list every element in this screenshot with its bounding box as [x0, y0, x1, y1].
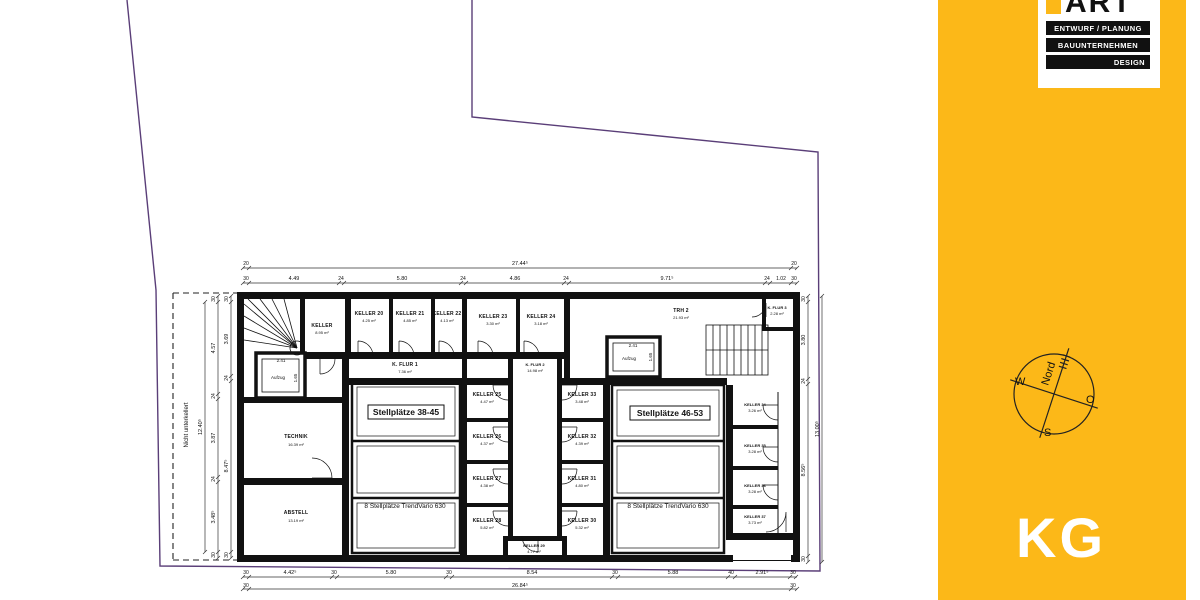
- room-k25-area: 4.47 m²: [480, 399, 494, 404]
- compass-north-label: Nord: [1039, 361, 1058, 387]
- room-k28-name: KELLER 28: [473, 518, 502, 524]
- dim-bot1-2: 30: [331, 570, 337, 576]
- room-k21-area: 4.85 m²: [403, 318, 417, 323]
- room-k22-name: KELLER 22: [433, 311, 462, 317]
- room-k37-name: KELLER 37: [744, 514, 766, 519]
- room-k29-area: 4.77 m²: [527, 549, 541, 554]
- dim-lm-6: 30: [211, 552, 217, 558]
- room-keller-area: 8.95 m²: [315, 330, 329, 335]
- room-k34-name: KELLER 34: [744, 402, 766, 407]
- dim-top1-0: 20: [243, 261, 249, 267]
- entry-notch: [733, 540, 791, 562]
- compass-south-label: S: [1044, 427, 1051, 439]
- floorplan-sheet: Nicht unterkellert: [0, 0, 1200, 600]
- logo-bar-design: DESIGN: [1046, 55, 1150, 69]
- dim-ri-3: 8.56⁵: [800, 464, 807, 477]
- room-k26-area: 4.37 m²: [480, 441, 494, 446]
- room-kflur2-name: K. FLUR 2: [525, 362, 545, 367]
- room-k27-area: 4.38 m²: [480, 483, 494, 488]
- room-k22-area: 4.13 m²: [440, 318, 454, 323]
- floor-label: KG: [1016, 505, 1106, 570]
- room-abstell-area: 13.19 m²: [288, 518, 304, 523]
- dim-bot2-1: 26.84⁵: [512, 582, 528, 589]
- dim-bot1-0: 30: [243, 570, 249, 576]
- room-k26-name: KELLER 26: [473, 434, 502, 440]
- room-kflur2-area: 14.98 m²: [527, 368, 543, 373]
- room-k35-name: KELLER 35: [744, 443, 766, 448]
- site-note: Nicht unterkellert: [184, 402, 190, 447]
- room-abstell-name: ABSTELL: [284, 510, 308, 516]
- elevator2-label: Aufzug: [622, 356, 637, 361]
- dim-li-3: 8.47⁵: [223, 460, 230, 473]
- room-keller-name: KELLER: [311, 323, 332, 329]
- dim-lm-1: 4.57: [211, 343, 217, 354]
- room-k35-area: 3.28 m²: [748, 449, 762, 454]
- company-logo: ART ENTWURF / PLANUNG BAUUNTERNEHMEN DES…: [1038, 0, 1160, 88]
- dim-top2-8: 24: [764, 276, 770, 282]
- dim-bot1-4: 30: [446, 570, 452, 576]
- room-k37-area: 3.73 m²: [748, 520, 762, 525]
- room-k25-name: KELLER 25: [473, 392, 502, 398]
- room-technik-area: 16.39 m²: [288, 442, 304, 447]
- room-kflur3-name: K. FLUR 3: [767, 305, 787, 310]
- elevator1-label: Aufzug: [271, 375, 286, 380]
- dim-top2-6: 24: [563, 276, 569, 282]
- dim-left-outer: 12.40⁵: [197, 419, 204, 435]
- room-k34-area: 3.26 m²: [748, 408, 762, 413]
- dim-bot1-9: 2.91⁵: [756, 569, 769, 576]
- room-kflur1-name: K. FLUR 1: [392, 362, 418, 368]
- dim-top2-2: 24: [338, 276, 344, 282]
- room-k30-area: 5.32 m²: [575, 525, 589, 530]
- dim-top1-1: 27.44⁵: [512, 260, 528, 267]
- room-k27-name: KELLER 27: [473, 476, 502, 482]
- dim-bot1-1: 4.42⁵: [284, 569, 297, 576]
- compass-east-label: O: [1086, 394, 1095, 406]
- room-k24-name: KELLER 24: [527, 314, 556, 320]
- dim-ri-2: 24: [801, 378, 807, 384]
- room-k36-area: 3.28 m²: [748, 489, 762, 494]
- dim-li-0: 30: [224, 296, 230, 302]
- room-k33-area: 3.48 m²: [575, 399, 589, 404]
- dim-top2-1: 4.49: [289, 276, 300, 282]
- dim-top2-9: 1.02: [776, 276, 786, 282]
- dim-top1-2: 20: [791, 261, 797, 267]
- room-k31-name: KELLER 31: [568, 476, 597, 482]
- dim-bot1-10: 30: [790, 570, 796, 576]
- dim-bot2-2: 30: [790, 583, 796, 589]
- room-k20-area: 4.25 m²: [362, 318, 376, 323]
- logo-bar-bau: BAUUNTERNEHMEN: [1046, 38, 1150, 52]
- room-k32-area: 4.39 m²: [575, 441, 589, 446]
- room-kflur3-area: 2.28 m²: [770, 311, 784, 316]
- elevator2-width: 2.41: [629, 343, 638, 348]
- dim-ri-0: 30: [801, 296, 807, 302]
- room-k31-area: 4.80 m²: [575, 483, 589, 488]
- dim-lm-2: 24: [211, 393, 217, 399]
- room-k21-name: KELLER 21: [396, 311, 425, 317]
- room-k36-name: KELLER 36: [744, 483, 766, 488]
- parking-left-note: 8 Stellplätze TrendVario 630: [364, 503, 446, 510]
- dim-top2-0: 30: [243, 276, 249, 282]
- room-k28-area: 5.82 m²: [480, 525, 494, 530]
- dim-bot1-7: 5.88: [668, 570, 679, 576]
- room-k20-name: KELLER 20: [355, 311, 384, 317]
- room-trh2-name: TRH 2: [673, 308, 688, 314]
- logo-brand: ART: [1065, 0, 1133, 18]
- dim-bot1-6: 30: [612, 570, 618, 576]
- dim-bot1-5: 8.54: [527, 570, 538, 576]
- dim-li-1: 3.69: [224, 334, 230, 345]
- parking-right-title: Stellplätze 46-53: [637, 408, 703, 418]
- dim-bot1-8: 40: [728, 570, 734, 576]
- dim-top2-5: 4.86: [510, 276, 521, 282]
- elevator1-depth: 1.65: [293, 373, 298, 382]
- dim-lm-3: 3.87: [211, 433, 217, 444]
- room-trh2-area: 21.93 m²: [673, 315, 689, 320]
- dim-lm-0: 30: [211, 296, 217, 302]
- logo-square-icon: [1046, 0, 1061, 14]
- dim-top2-3: 5.80: [397, 276, 408, 282]
- parking-right-note: 8 Stellplätze TrendVario 630: [627, 503, 709, 510]
- dim-top2-4: 24: [460, 276, 466, 282]
- compass-icon: Nord W O S: [1002, 340, 1106, 444]
- dim-bot1-3: 5.80: [386, 570, 397, 576]
- dim-li-2: 24: [224, 375, 230, 381]
- room-k23-area: 3.30 m²: [486, 321, 500, 326]
- dim-top2-10: 30: [791, 276, 797, 282]
- room-k23-name: KELLER 23: [479, 314, 508, 320]
- room-k32-name: KELLER 32: [568, 434, 597, 440]
- dim-top2-7: 9.71⁵: [661, 275, 674, 282]
- room-technik-name: TECHNIK: [284, 434, 308, 440]
- dim-right-outer: 13.00⁵: [814, 421, 821, 437]
- logo-bar-planung: ENTWURF / PLANUNG: [1046, 21, 1150, 35]
- compass-west-label: W: [1015, 376, 1026, 388]
- elevator1-width: 2.41: [277, 358, 286, 363]
- dim-ri-1: 3.80: [801, 335, 807, 346]
- dim-bot2-0: 30: [243, 583, 249, 589]
- compass-rose: Nord W O S: [1002, 340, 1106, 444]
- dim-lm-5: 3.48⁵: [210, 511, 217, 524]
- elevator2-depth: 1.65: [648, 352, 653, 361]
- parking-left-title: Stellplätze 38-45: [373, 407, 439, 417]
- room-k30-name: KELLER 30: [568, 518, 597, 524]
- dim-lm-4: 24: [211, 476, 217, 482]
- title-sidebar: ART ENTWURF / PLANUNG BAUUNTERNEHMEN DES…: [938, 0, 1186, 600]
- room-k24-area: 3.18 m²: [534, 321, 548, 326]
- dim-ri-4: 30: [801, 556, 807, 562]
- room-k29-name: KELLER 29: [523, 543, 545, 548]
- room-kflur1-area: 7.36 m²: [398, 369, 412, 374]
- dim-li-4: 30: [224, 552, 230, 558]
- room-k33-name: KELLER 33: [568, 392, 597, 398]
